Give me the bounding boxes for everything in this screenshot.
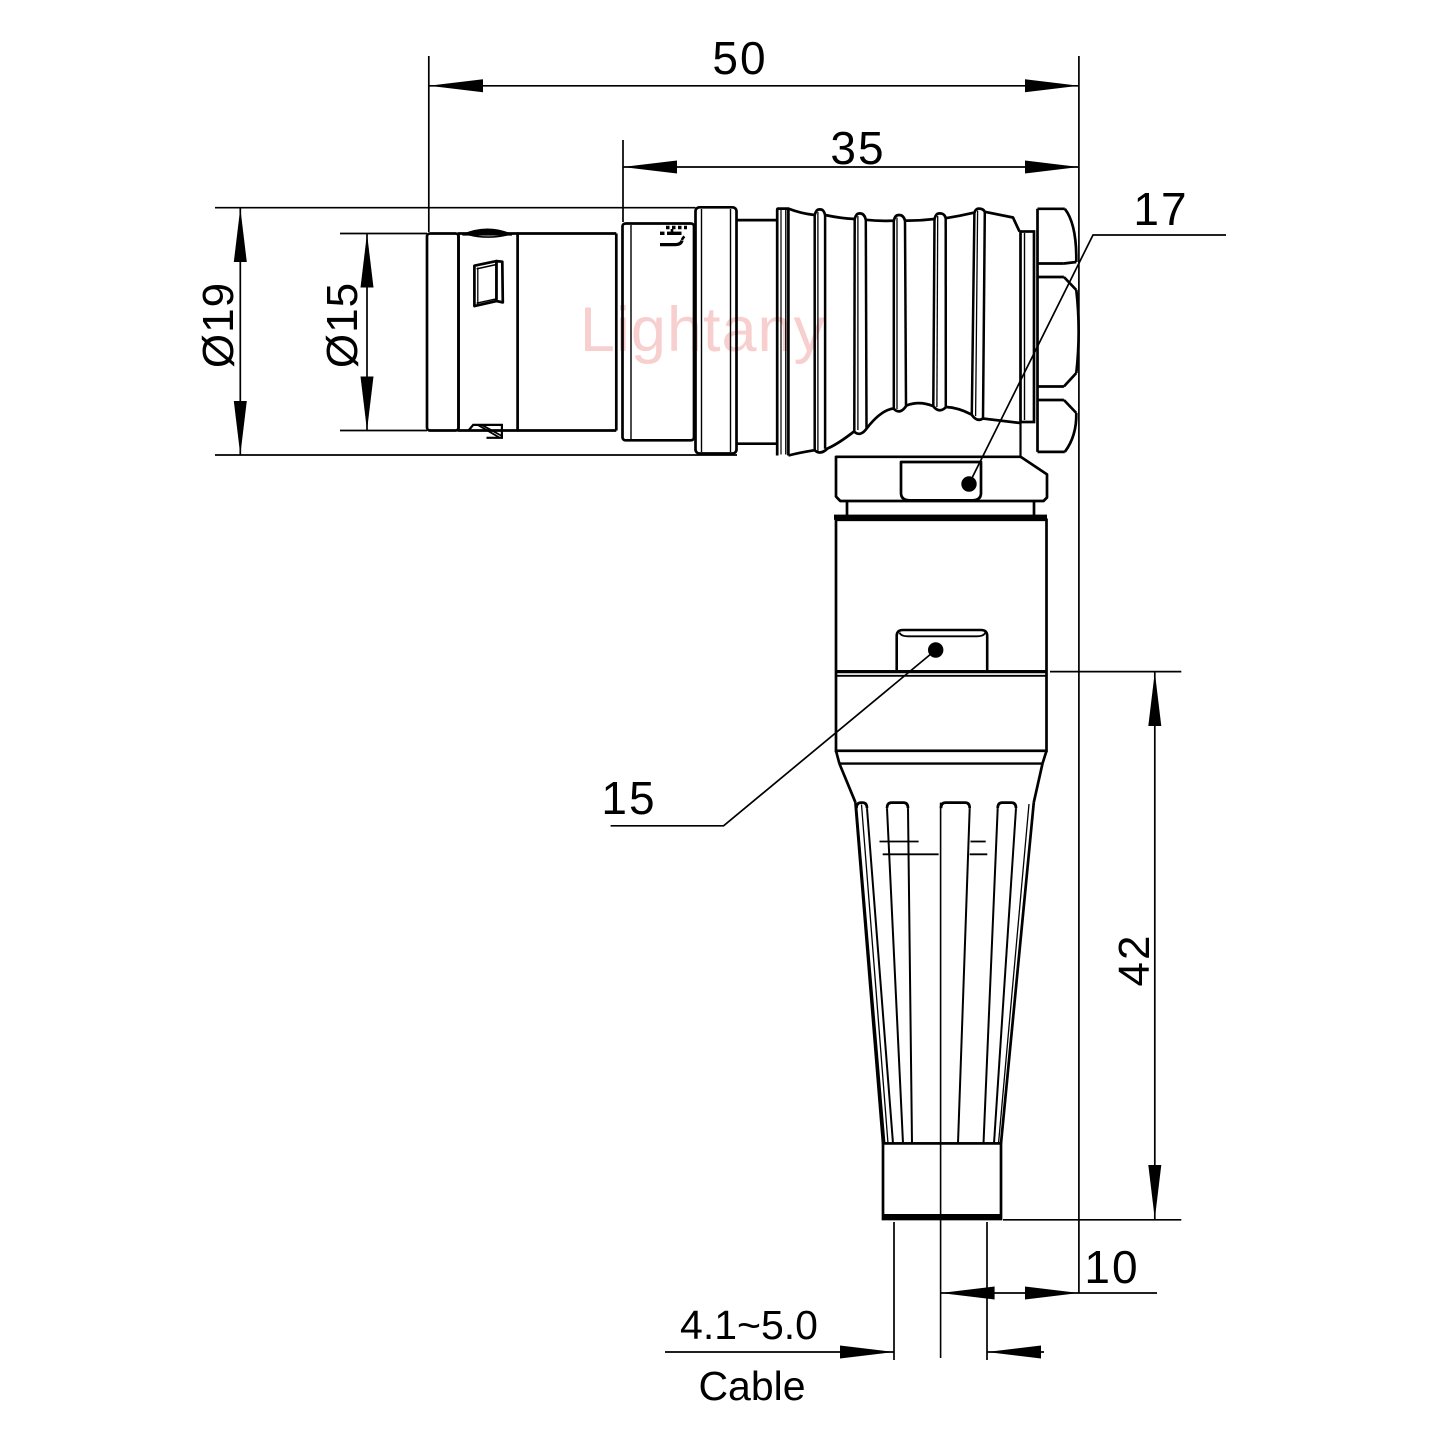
svg-text:Ø15: Ø15 [318, 282, 367, 368]
svg-text:Cable: Cable [698, 1363, 805, 1409]
svg-text:35: 35 [830, 122, 885, 174]
svg-text:4.1~5.0: 4.1~5.0 [680, 1302, 818, 1348]
svg-text:Ø19: Ø19 [194, 282, 243, 368]
svg-text:42: 42 [1110, 934, 1159, 987]
svg-text:10: 10 [1084, 1241, 1139, 1293]
svg-text:15: 15 [601, 772, 656, 824]
svg-text:50: 50 [712, 32, 767, 84]
svg-text:17: 17 [1133, 183, 1188, 235]
